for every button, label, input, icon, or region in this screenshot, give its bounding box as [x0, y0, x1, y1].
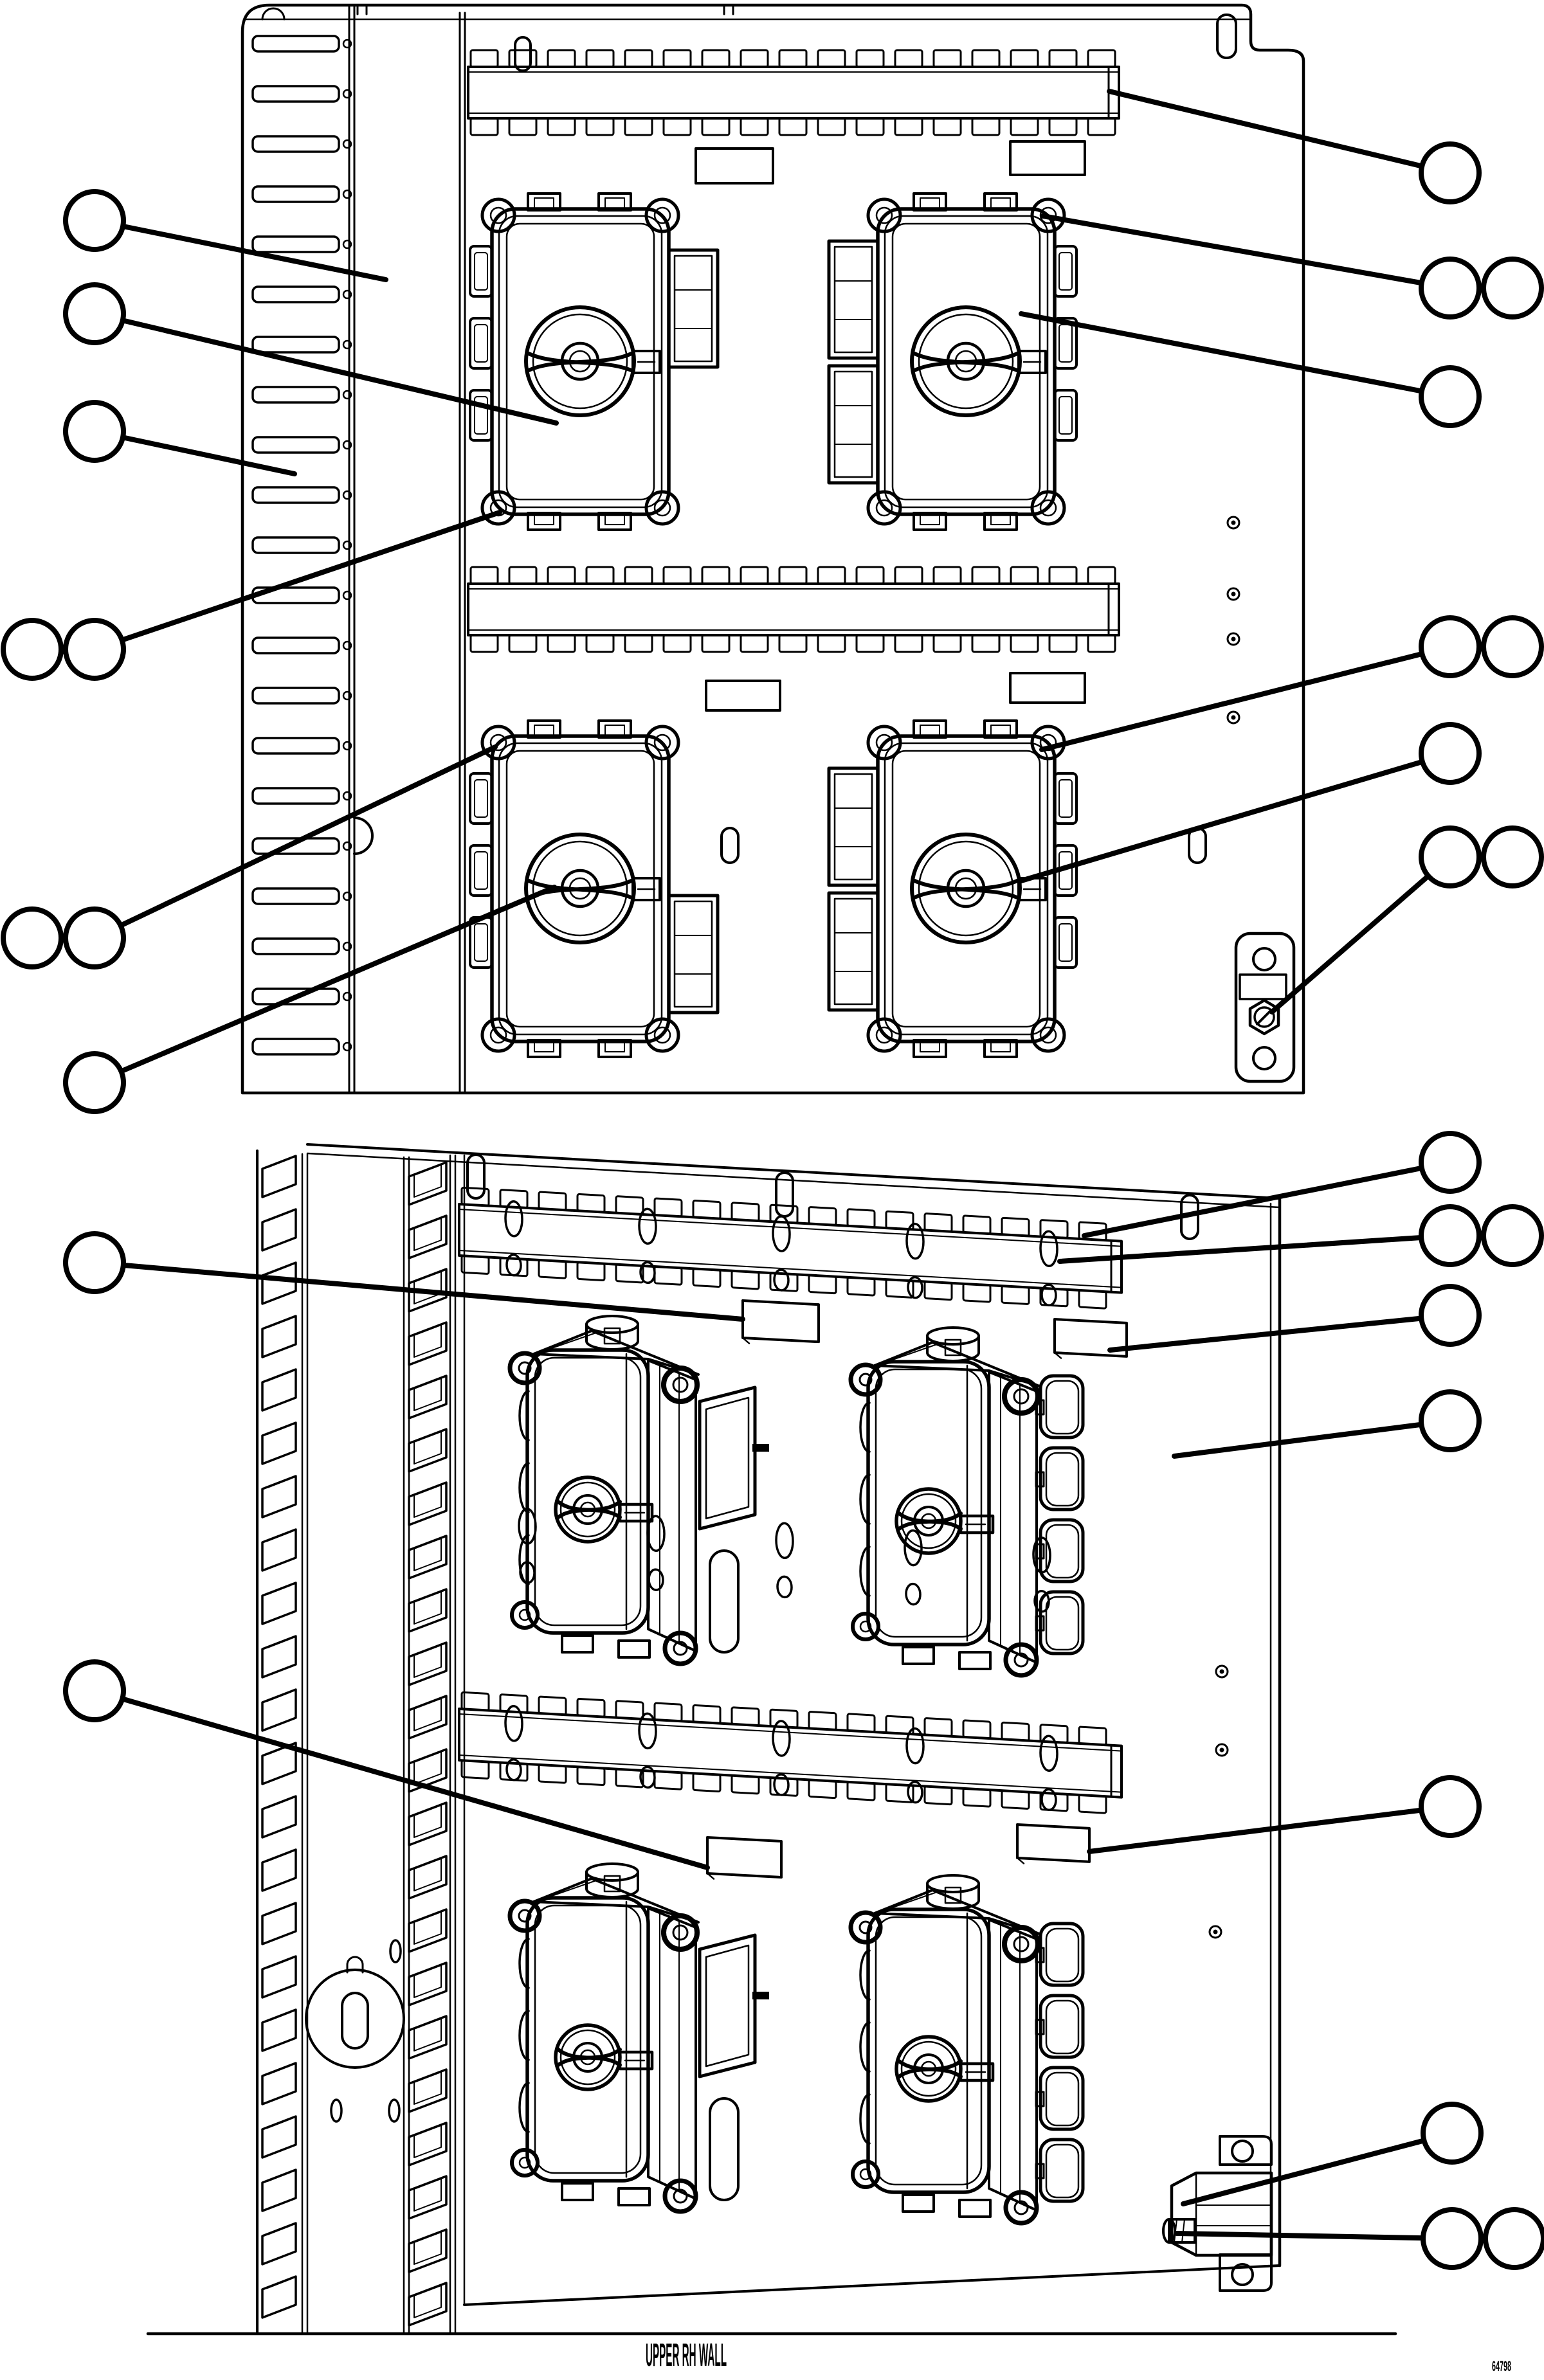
duct-slot: [253, 487, 339, 503]
callout-balloon: [3, 909, 61, 967]
callout-balloon: [1484, 259, 1541, 317]
label-plate: [706, 681, 780, 710]
mounting-stud: [1163, 2219, 1195, 2242]
duct-finger: [262, 1690, 296, 1731]
duct-finger: [409, 1376, 446, 1418]
callout-balloon: [1421, 1286, 1479, 1344]
ecm-module-d: [829, 721, 1076, 1057]
label-plate: [696, 149, 773, 183]
duct-finger: [409, 2123, 446, 2165]
keyhole-slot-pair: [648, 1515, 664, 1590]
duct-slot: [253, 36, 339, 51]
duct-finger: [262, 1903, 296, 1944]
callout-balloon: [1484, 1207, 1541, 1265]
keyhole-slot-pair: [905, 1530, 922, 1605]
hang-slot: [468, 1155, 484, 1198]
duct-finger: [409, 1216, 446, 1258]
duct-slot: [253, 136, 339, 152]
duct-slot: [253, 387, 339, 402]
callout-balloon: [1421, 1392, 1479, 1450]
bracket-hole: [1232, 2141, 1253, 2161]
duct-slot: [253, 437, 339, 453]
duct-finger: [262, 1156, 296, 1197]
duct-finger: [262, 1316, 296, 1357]
callout-balloon: [1421, 144, 1479, 202]
callout-balloon: [1421, 1778, 1479, 1835]
leader-line: [1021, 753, 1450, 881]
leader-line: [1109, 91, 1450, 173]
callout-balloon: [1421, 725, 1479, 782]
mounting-bracket: [1236, 933, 1294, 1081]
callout-balloon: [1421, 1133, 1479, 1191]
duct-finger: [409, 1696, 446, 1738]
duct-slot: [253, 86, 339, 102]
duct-finger: [262, 1583, 296, 1624]
callout-balloon: [1421, 828, 1479, 886]
callout-balloon: [66, 1234, 123, 1292]
label-plate: [1017, 1825, 1089, 1867]
duct-slot: [253, 738, 339, 753]
duct-finger: [262, 2276, 296, 2318]
callout-balloon: [66, 285, 123, 343]
callout-balloon: [66, 402, 123, 460]
panel-bottom-edge: [464, 2266, 1280, 2305]
label-plate: [707, 1837, 781, 1882]
callout-balloon: [66, 909, 123, 967]
duct-finger: [262, 2010, 296, 2051]
duct-slot: [253, 788, 339, 804]
callout-balloon: [3, 620, 61, 678]
duct-finger: [262, 2063, 296, 2104]
duct-finger: [262, 1956, 296, 1997]
figure-title: UPPER RH WALL: [646, 2337, 727, 2373]
duct-slot: [253, 888, 339, 904]
duct-finger: [262, 1796, 296, 1837]
corner-notch: [262, 8, 284, 19]
duct-finger: [262, 1369, 296, 1411]
leader-line: [1174, 1421, 1450, 1456]
duct-slot: [253, 1039, 339, 1054]
callout-balloon: [66, 620, 123, 678]
duct-slot: [253, 186, 339, 202]
duct-finger: [262, 2223, 296, 2264]
ecm-module-a: [470, 194, 718, 530]
leader-line: [95, 221, 386, 280]
duct-slot: [253, 237, 339, 252]
bracket-hole: [1253, 1047, 1275, 1069]
duct-hole: [390, 1940, 401, 1962]
wire-raceway-3d: [459, 1692, 1122, 1814]
wire-raceway: [468, 567, 1119, 652]
leader-line: [95, 747, 495, 938]
duct-finger: [262, 1423, 296, 1464]
keyhole-slot-pair: [776, 1523, 793, 1598]
duct-hole: [389, 2100, 399, 2122]
duct-finger: [409, 1589, 446, 1632]
callout-balloon: [66, 1662, 123, 1720]
duct-finger: [409, 1909, 446, 1952]
callout-balloon: [1421, 1207, 1479, 1265]
duct-slot: [253, 287, 339, 302]
duct-finger: [409, 1536, 446, 1578]
duct-finger: [409, 2016, 446, 2059]
duct-finger: [409, 2283, 446, 2325]
duct-finger: [262, 1850, 296, 1891]
leader-line: [1042, 647, 1450, 750]
leader-line: [1043, 216, 1450, 288]
ecm-module-e: [510, 1316, 769, 1664]
duct-slot: [253, 337, 339, 352]
callout-balloon: [1421, 618, 1479, 676]
duct-finger: [409, 1322, 446, 1365]
callout-balloon: [1423, 2210, 1481, 2267]
ecm-module-c: [470, 721, 718, 1057]
leader-line: [1089, 1807, 1450, 1852]
leader-line: [1177, 2233, 1452, 2239]
callout-balloon: [1421, 368, 1479, 426]
ecm-module-h: [851, 1875, 1083, 2223]
hang-slot: [1217, 15, 1236, 58]
figure-number: 64798: [1492, 2358, 1511, 2374]
duct-slot: [253, 939, 339, 954]
duct-slot: [253, 638, 339, 653]
duct-finger: [409, 1162, 446, 1205]
hang-slot: [1189, 828, 1206, 863]
duct-finger: [262, 1529, 296, 1571]
duct-finger: [409, 1803, 446, 1845]
callout-balloon: [1485, 2210, 1543, 2267]
bottom-view-wall: [148, 1144, 1395, 2334]
wire-raceway-3d: [459, 1187, 1122, 1310]
leader-line: [1060, 1236, 1450, 1261]
duct-hole: [331, 2100, 341, 2122]
label-plate: [1010, 673, 1085, 703]
hang-slot: [722, 828, 738, 863]
duct-finger: [409, 2230, 446, 2272]
callout-balloon: [1423, 2104, 1481, 2162]
duct-finger: [409, 1643, 446, 1685]
ecm-module-f: [851, 1328, 1083, 1675]
vertical-cable-duct: [253, 5, 372, 1093]
duct-finger: [409, 1483, 446, 1525]
vertical-cable-duct-3d: [257, 1151, 455, 2334]
duct-finger: [262, 1263, 296, 1304]
duct-finger: [409, 1856, 446, 1898]
callout-balloon: [1484, 828, 1541, 886]
wire-raceway: [468, 50, 1119, 135]
leader-line: [1021, 314, 1450, 397]
leader-line: [95, 512, 500, 649]
label-plate: [1010, 141, 1085, 175]
hex-fastener: [1250, 1000, 1278, 1034]
duct-slot: [253, 688, 339, 703]
label-plate: [743, 1301, 819, 1347]
duct-finger: [262, 2170, 296, 2211]
callout-balloon: [1484, 618, 1541, 676]
duct-finger: [409, 2176, 446, 2219]
duct-finger: [409, 1963, 446, 2005]
callout-balloon: [1421, 259, 1479, 317]
ecm-module-g: [510, 1864, 769, 2212]
callout-balloon: [66, 1054, 123, 1112]
duct-slot: [253, 537, 339, 553]
duct-finger: [262, 1476, 296, 1517]
ecm-module-b: [829, 194, 1076, 530]
duct-finger: [409, 2069, 446, 2112]
duct-finger: [409, 1429, 446, 1472]
duct-finger: [262, 1636, 296, 1677]
duct-finger: [262, 1209, 296, 1250]
callout-balloon: [66, 192, 123, 249]
parts-diagram: UPPER RH WALL 64798: [0, 0, 1544, 2380]
leader-line: [1272, 857, 1450, 1012]
leader-line: [1183, 2133, 1452, 2204]
duct-finger: [262, 2116, 296, 2158]
leader-line: [95, 1263, 743, 1319]
duct-knockout: [306, 1957, 404, 2068]
bracket-hole: [1253, 948, 1275, 970]
top-view-wall: [242, 5, 1303, 1938]
label-plate: [1055, 1319, 1127, 1362]
duct-knockout: [354, 818, 372, 854]
